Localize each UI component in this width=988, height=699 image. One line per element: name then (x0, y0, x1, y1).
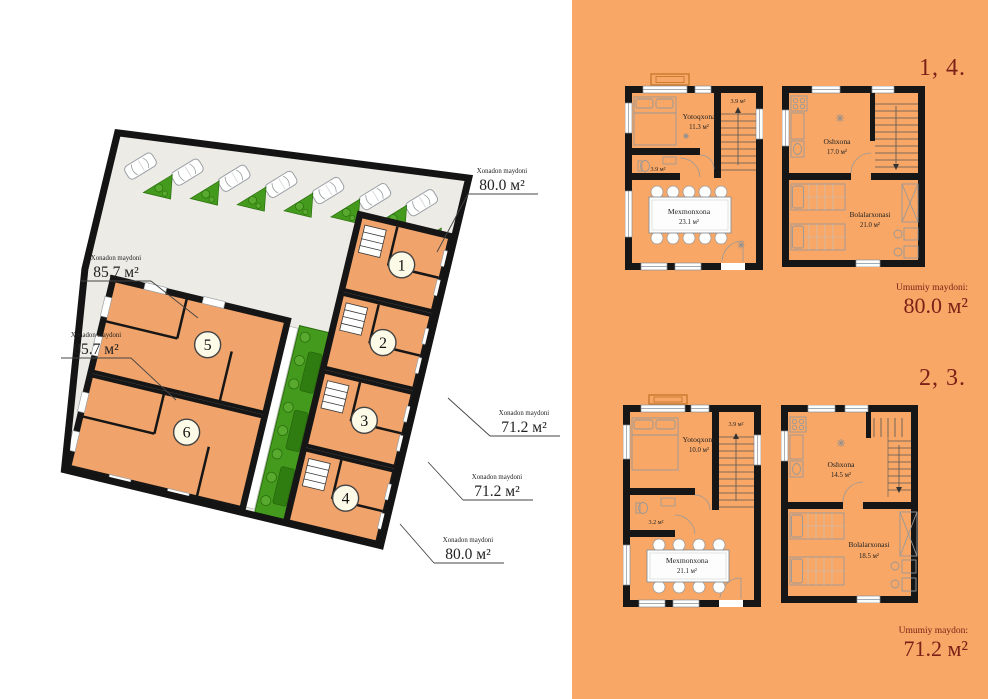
sink (663, 157, 676, 164)
bed (791, 224, 845, 250)
stove (790, 417, 806, 432)
kids-area: 21.0 м² (860, 222, 880, 229)
door-arc (700, 155, 714, 169)
toilet (638, 161, 650, 172)
unit-3-number: 3 (360, 413, 368, 430)
svg-text:Xonadon maydoni: Xonadon maydoni (443, 537, 494, 544)
plant-icon (837, 439, 845, 447)
door-arc (843, 482, 863, 502)
bed (634, 97, 676, 145)
kitchen-name: Oshxona (824, 137, 852, 146)
area-label-unit-3: Xonadon maydoni 71.2 м² (428, 462, 533, 500)
kids-name: Bolalarxonasi (849, 210, 890, 219)
kitchen-sink (791, 141, 804, 157)
plant-icon (738, 242, 745, 249)
group-80-total: Umumiy maydoni: 80.0 м² (896, 284, 968, 317)
kitchen-counter (790, 435, 803, 459)
kitchen-area: 17.0 м² (827, 149, 847, 156)
plan-80-floor1: 3.9 м² Yotoqxona 11.3 м² 3.9 м² (625, 73, 763, 272)
svg-text:Xonadon maydoni: Xonadon maydoni (91, 255, 142, 262)
svg-text:Xonadon maydoni: Xonadon maydoni (71, 332, 122, 339)
group-71-total: Umumiy maydon: 71.2 м² (899, 627, 968, 660)
plan-71-floor2: Oshxona 14.5 м² Bolalarxonasi 18.5 (781, 405, 918, 603)
bed (632, 418, 678, 470)
bedroom-area: 11.3 м² (689, 124, 709, 131)
bath-area: 3.9 м² (650, 166, 665, 173)
sink (661, 498, 675, 506)
stairs (721, 113, 756, 170)
kids-area: 18.5 м² (859, 553, 879, 560)
svg-text:Xonadon maydoni: Xonadon maydoni (472, 474, 523, 481)
bed (790, 513, 844, 539)
dining-table (647, 539, 729, 593)
bedroom-name: Yotoqxona (683, 112, 717, 121)
svg-text:71.2 м²: 71.2 м² (501, 419, 547, 436)
bath-area: 3.2 м² (648, 519, 663, 526)
chimney (651, 74, 689, 85)
kitchen-area: 14.5 м² (831, 472, 851, 479)
desk (894, 228, 918, 258)
total-value: 80.0 м² (896, 295, 968, 317)
unit-6-number: 6 (183, 425, 191, 442)
kitchen-counter (791, 113, 804, 139)
living-area: 21.1 м² (677, 568, 697, 575)
stairs (874, 418, 911, 497)
chimney (649, 395, 687, 404)
wardrobe (902, 184, 918, 222)
plant-icon (836, 114, 844, 122)
door-arc (851, 153, 871, 173)
bedroom-name: Yotoqxona (683, 435, 717, 444)
kitchen-name: Oshxona (828, 460, 856, 469)
floorplans-panel: 1, 4. 3.9 (572, 0, 988, 699)
door-arc (680, 158, 700, 177)
kitchen-sink (790, 461, 803, 477)
plan-71-floor1: 3.9 м² Yotoqxona 10.0 м² 3.2 м² (623, 393, 761, 614)
unit-5-number: 5 (204, 337, 212, 354)
site-plan-panel: 1 2 3 4 5 6 Xonadon maydoni 80.0 м² Xona… (0, 0, 570, 699)
area-label-unit-2: Xonadon maydoni 71.2 м² (448, 398, 560, 436)
unit-2-number: 2 (379, 335, 387, 352)
bedroom-area: 10.0 м² (689, 447, 709, 454)
living-name: Mexmonxona (666, 556, 709, 565)
stairs (719, 437, 754, 507)
stair-wall (870, 93, 875, 141)
stair-wall (866, 412, 871, 438)
total-value: 71.2 м² (899, 638, 968, 660)
kids-name: Bolalarxonasi (848, 540, 889, 549)
door-arc (675, 515, 695, 534)
plan-80-floor2: Oshxona 17.0 м² Bolalarxonasi 21.0 (782, 86, 925, 267)
stair-wall (712, 412, 719, 510)
living-area: 23.1 м² (679, 219, 699, 226)
svg-text:80.0 м²: 80.0 м² (445, 546, 491, 563)
area-label-unit-4: Xonadon maydoni 80.0 м² (400, 524, 504, 563)
group-80-units-label: 1, 4. (919, 56, 966, 80)
unit-4-number: 4 (342, 491, 350, 508)
site-rotated-group: 1 2 3 4 5 6 (38, 96, 469, 547)
toilet (636, 503, 648, 514)
svg-text:80.0 м²: 80.0 м² (479, 177, 525, 194)
svg-text:85.7 м²: 85.7 м² (93, 264, 139, 281)
stove (791, 96, 807, 111)
site-plan: 1 2 3 4 5 6 Xonadon maydoni 80.0 м² Xona… (0, 0, 570, 699)
stairs (875, 104, 918, 167)
living-name: Mexmonxona (668, 207, 711, 216)
unit-1-number: 1 (398, 257, 406, 274)
stair-area: 3.9 м² (730, 98, 745, 105)
bed (790, 557, 844, 585)
bed (791, 184, 845, 210)
svg-text:Xonadon maydoni: Xonadon maydoni (477, 168, 528, 175)
screenshot-root: 1 2 3 4 5 6 Xonadon maydoni 80.0 м² Xona… (0, 0, 988, 699)
stair-wall (714, 93, 721, 178)
svg-text:Xonadon maydoni: Xonadon maydoni (499, 410, 550, 417)
door-arc (695, 495, 710, 510)
svg-text:85.7 м²: 85.7 м² (73, 341, 119, 358)
stair-arrow-up (733, 433, 739, 439)
svg-text:71.2 м²: 71.2 м² (474, 483, 520, 500)
plant-icon (683, 133, 689, 139)
stair-arrow-up (735, 107, 741, 113)
group-71-units-label: 2, 3. (919, 366, 966, 390)
stair-area: 3.9 м² (728, 421, 743, 428)
